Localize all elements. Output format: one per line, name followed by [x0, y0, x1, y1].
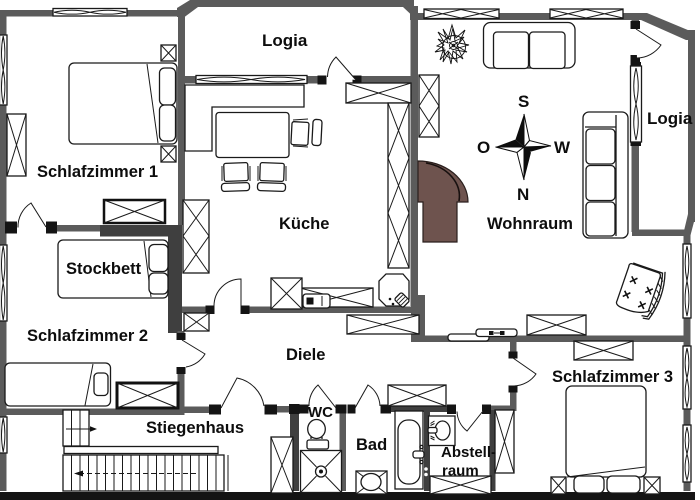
svg-text:Diele: Diele [286, 346, 325, 364]
svg-text:N: N [517, 185, 529, 204]
svg-text:Logia: Logia [262, 31, 308, 50]
svg-text:Bad: Bad [356, 436, 387, 454]
svg-text:Wohnraum: Wohnraum [487, 215, 573, 233]
svg-text:Stiegenhaus: Stiegenhaus [146, 419, 244, 437]
svg-text:S: S [518, 92, 529, 111]
svg-text:Schlafzimmer 1: Schlafzimmer 1 [37, 163, 158, 181]
svg-text:Schlafzimmer 2: Schlafzimmer 2 [27, 327, 148, 345]
svg-text:O: O [477, 138, 490, 157]
svg-text:Stockbett: Stockbett [66, 260, 142, 278]
svg-text:Abstell-: Abstell- [441, 444, 496, 461]
svg-text:WC: WC [308, 404, 333, 421]
svg-text:Küche: Küche [279, 215, 329, 233]
svg-text:Logia: Logia [647, 109, 693, 128]
svg-text:raum: raum [442, 463, 479, 480]
svg-text:Schlafzimmer 3: Schlafzimmer 3 [552, 368, 673, 386]
svg-text:W: W [554, 138, 571, 157]
